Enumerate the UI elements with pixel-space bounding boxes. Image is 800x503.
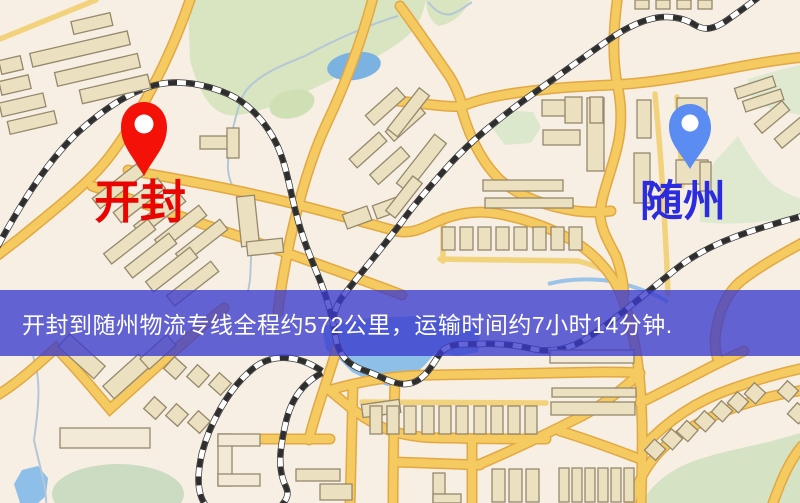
map-view[interactable]: 开封 随州 开封到随州物流专线全程约572公里，运输时间约7小时14分钟. [0,0,800,503]
destination-city-label: 随州 [640,178,726,226]
pin-hole [682,115,699,132]
pin-hole [135,115,154,134]
map-canvas[interactable]: 开封 随州 [0,0,800,503]
origin-city-label: 开封 [94,176,186,228]
route-info-text: 开封到随州物流专线全程约572公里，运输时间约7小时14分钟. [22,306,673,340]
route-info-banner: 开封到随州物流专线全程约572公里，运输时间约7小时14分钟. [0,290,800,356]
